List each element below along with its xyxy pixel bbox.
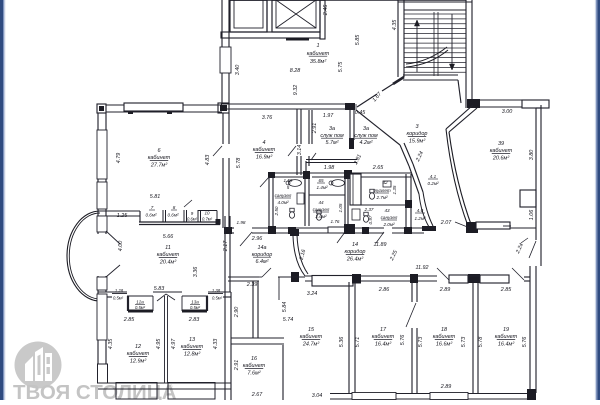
- svg-text:4.0: 4.0: [417, 208, 424, 213]
- svg-text:1.76: 1.76: [331, 219, 340, 224]
- svg-text:3.00: 3.00: [502, 109, 513, 115]
- svg-text:43: 43: [384, 208, 390, 213]
- svg-text:1.98: 1.98: [324, 165, 335, 171]
- svg-text:4.35: 4.35: [108, 338, 114, 349]
- svg-text:11.92: 11.92: [415, 265, 428, 271]
- svg-text:18: 18: [441, 327, 448, 333]
- svg-text:4: 4: [262, 140, 265, 146]
- svg-text:39: 39: [498, 141, 504, 147]
- svg-text:5.81: 5.81: [150, 194, 161, 200]
- svg-text:4.97: 4.97: [171, 338, 177, 349]
- svg-text:42: 42: [382, 180, 388, 185]
- svg-text:0.97: 0.97: [368, 215, 373, 224]
- svg-text:0.6м²: 0.6м²: [167, 213, 179, 218]
- svg-text:20.4м²: 20.4м²: [159, 259, 176, 265]
- svg-text:3.04: 3.04: [312, 393, 323, 399]
- svg-text:5.75: 5.75: [338, 61, 344, 72]
- svg-text:2.46: 2.46: [323, 5, 329, 17]
- svg-text:2.6м²: 2.6м²: [314, 214, 327, 219]
- svg-text:19: 19: [503, 327, 509, 333]
- svg-text:15: 15: [308, 327, 315, 333]
- svg-text:2.50: 2.50: [274, 206, 279, 216]
- svg-text:0.5м²: 0.5м²: [190, 305, 201, 310]
- svg-text:4.00: 4.00: [118, 241, 124, 252]
- svg-text:4.95: 4.95: [156, 338, 162, 349]
- svg-text:5.76: 5.76: [400, 335, 406, 346]
- svg-text:3а: 3а: [363, 126, 369, 132]
- svg-text:3.14: 3.14: [297, 145, 303, 156]
- svg-text:0.7м²: 0.7м²: [202, 217, 213, 222]
- svg-text:5.7м²: 5.7м²: [326, 140, 339, 146]
- svg-text:4.79: 4.79: [116, 153, 122, 164]
- svg-text:35.8м²: 35.8м²: [310, 59, 326, 65]
- svg-text:5.83: 5.83: [154, 286, 165, 292]
- svg-text:12.9м²: 12.9м²: [130, 358, 146, 364]
- svg-text:2.39: 2.39: [246, 282, 258, 288]
- svg-text:1.06: 1.06: [529, 210, 535, 221]
- svg-text:3.76: 3.76: [262, 115, 273, 121]
- svg-text:7: 7: [151, 205, 154, 210]
- svg-text:5.84: 5.84: [282, 302, 288, 313]
- svg-text:16.4м²: 16.4м²: [375, 341, 391, 347]
- svg-text:санузел: санузел: [275, 193, 292, 198]
- svg-text:0.6м²: 0.6м²: [145, 213, 157, 218]
- svg-text:2.91: 2.91: [234, 360, 240, 372]
- svg-text:5: 5: [287, 185, 290, 190]
- svg-text:2.17: 2.17: [223, 240, 229, 252]
- svg-text:2.86: 2.86: [378, 287, 390, 293]
- svg-text:2.91: 2.91: [312, 123, 318, 135]
- svg-text:8: 8: [173, 205, 176, 210]
- svg-text:4.83: 4.83: [205, 155, 211, 166]
- svg-text:5.66: 5.66: [163, 234, 174, 240]
- svg-text:1.28: 1.28: [115, 288, 124, 293]
- svg-text:5.73: 5.73: [418, 337, 424, 348]
- svg-text:4.2м²: 4.2м²: [360, 140, 373, 146]
- svg-text:3а: 3а: [329, 126, 335, 132]
- svg-text:16.9м²: 16.9м²: [256, 154, 272, 160]
- svg-text:2.67: 2.67: [251, 392, 263, 398]
- svg-text:санузел: санузел: [381, 215, 398, 220]
- svg-text:12: 12: [135, 344, 141, 350]
- svg-text:2.65: 2.65: [372, 165, 384, 171]
- svg-text:3.36: 3.36: [193, 267, 199, 278]
- svg-text:26.4м²: 26.4м²: [346, 256, 363, 262]
- svg-text:14а: 14а: [258, 245, 267, 251]
- svg-text:4.1: 4.1: [430, 174, 437, 179]
- svg-text:3.40: 3.40: [235, 65, 241, 76]
- svg-text:7.6м²: 7.6м²: [247, 370, 260, 376]
- svg-text:4.33: 4.33: [213, 339, 219, 350]
- svg-text:ТВОЯ СТОЛИЦА: ТВОЯ СТОЛИЦА: [13, 381, 177, 400]
- svg-text:2.96: 2.96: [251, 236, 263, 242]
- svg-text:13а: 13а: [191, 300, 199, 305]
- svg-text:1.97: 1.97: [323, 113, 334, 119]
- svg-text:3.80: 3.80: [529, 150, 535, 161]
- svg-text:1.98: 1.98: [237, 220, 246, 225]
- svg-text:туалет: туалет: [373, 188, 391, 193]
- svg-text:16.6м²: 16.6м²: [436, 341, 452, 347]
- svg-text:20.6м²: 20.6м²: [492, 155, 509, 161]
- svg-text:5.85: 5.85: [355, 34, 361, 45]
- svg-text:1.05: 1.05: [338, 203, 343, 212]
- svg-text:2.89: 2.89: [440, 384, 452, 390]
- svg-text:0.45: 0.45: [355, 110, 366, 116]
- svg-text:0.5м²: 0.5м²: [135, 305, 146, 310]
- svg-text:1.35: 1.35: [392, 185, 397, 194]
- svg-text:14: 14: [352, 242, 358, 248]
- svg-text:1.38: 1.38: [212, 288, 221, 293]
- svg-text:5.76: 5.76: [522, 337, 528, 348]
- svg-text:1: 1: [316, 43, 319, 49]
- svg-text:8.28: 8.28: [290, 68, 301, 74]
- svg-text:2.37: 2.37: [364, 207, 374, 212]
- svg-text:0.5м²: 0.5м²: [212, 296, 223, 301]
- svg-text:2.85: 2.85: [123, 317, 135, 323]
- svg-text:5.78: 5.78: [478, 337, 484, 348]
- svg-text:0.5м²: 0.5м²: [113, 296, 124, 301]
- svg-text:17: 17: [380, 327, 387, 333]
- svg-text:65: 65: [318, 178, 324, 183]
- svg-text:2.89: 2.89: [439, 287, 451, 293]
- svg-text:5.78: 5.78: [236, 158, 242, 169]
- svg-text:44: 44: [318, 200, 324, 205]
- svg-text:6.4м²: 6.4м²: [256, 259, 269, 265]
- svg-text:16: 16: [251, 356, 258, 362]
- svg-text:1.25: 1.25: [117, 213, 128, 219]
- svg-text:1.4м²: 1.4м²: [316, 185, 328, 190]
- svg-text:13: 13: [189, 337, 196, 343]
- svg-text:2.85: 2.85: [500, 287, 512, 293]
- svg-text:4.35: 4.35: [392, 19, 398, 30]
- svg-text:16.4м²: 16.4м²: [498, 341, 514, 347]
- svg-text:4.0м²: 4.0м²: [277, 200, 289, 205]
- svg-text:12.8м²: 12.8м²: [184, 351, 200, 357]
- svg-text:2.0м²: 2.0м²: [382, 222, 395, 227]
- svg-text:5.73: 5.73: [461, 337, 467, 348]
- svg-text:5.74: 5.74: [283, 317, 294, 323]
- svg-text:5.36: 5.36: [339, 337, 345, 348]
- svg-text:2.7м²: 2.7м²: [375, 195, 388, 200]
- svg-text:2.07: 2.07: [440, 220, 452, 226]
- svg-text:0.2м²: 0.2м²: [427, 181, 439, 186]
- svg-text:2.83: 2.83: [188, 317, 200, 323]
- svg-text:1.59: 1.59: [284, 178, 293, 183]
- svg-text:10: 10: [204, 211, 210, 216]
- svg-text:0.6м²: 0.6м²: [187, 217, 198, 222]
- svg-text:11: 11: [165, 245, 171, 251]
- svg-text:®: ®: [168, 384, 173, 391]
- svg-text:24.7м²: 24.7м²: [302, 341, 319, 347]
- svg-text:15.9м²: 15.9м²: [409, 138, 425, 144]
- svg-text:5.71: 5.71: [355, 337, 361, 348]
- svg-text:27.7м²: 27.7м²: [150, 162, 167, 168]
- svg-text:12а: 12а: [136, 300, 144, 305]
- svg-text:1.2м²: 1.2м²: [414, 216, 426, 221]
- svg-text:2.90: 2.90: [234, 307, 240, 319]
- svg-text:11.89: 11.89: [373, 242, 386, 248]
- svg-text:9.32: 9.32: [293, 85, 299, 96]
- svg-text:санузел: санузел: [313, 207, 330, 212]
- svg-text:3.24: 3.24: [307, 291, 318, 297]
